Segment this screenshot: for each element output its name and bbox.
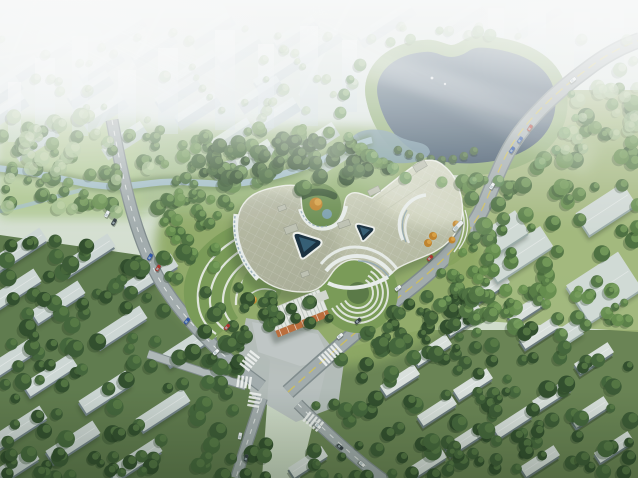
atmosphere bbox=[0, 0, 638, 478]
rendering-canvas bbox=[0, 0, 638, 478]
color-cast bbox=[0, 0, 638, 478]
aerial-rendering bbox=[0, 0, 638, 478]
